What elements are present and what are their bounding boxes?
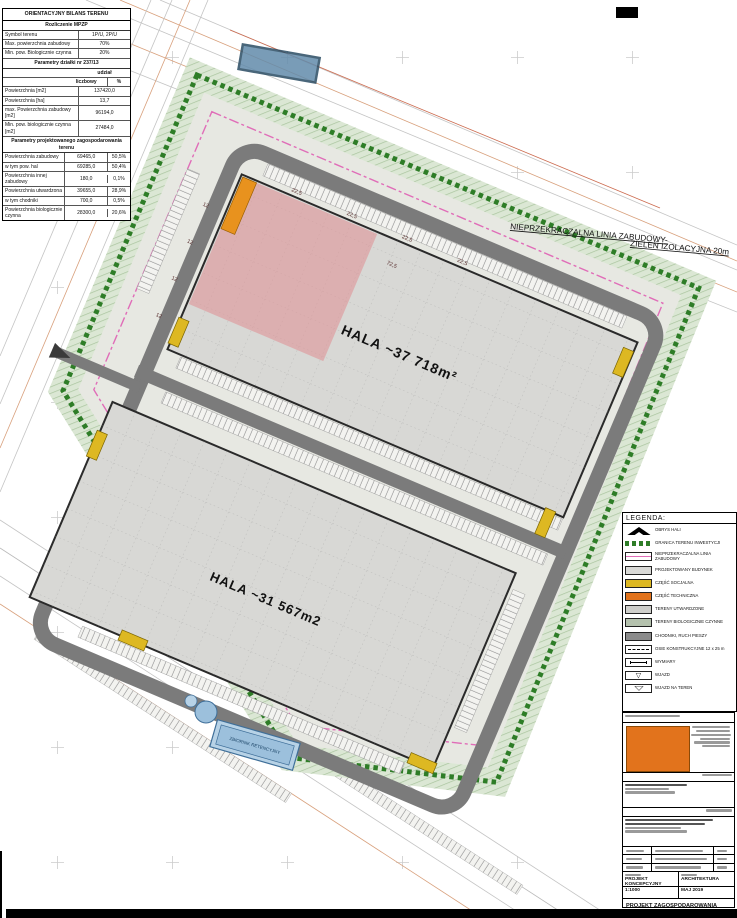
legend-title: LEGENDA: [623,513,736,524]
sidewalks-swatch [625,632,652,641]
sheet-left-edge [0,851,2,918]
company-info [691,725,732,749]
biologically-active-swatch [625,618,652,627]
legend-item: CHODNIKI, RUCH PIESZY [623,630,736,643]
legend-item: GRANICA TERENU INWESTYCJI [623,537,736,550]
titleblock-logo-row [623,723,734,773]
drawing-scale: 1:1000 [625,888,676,893]
building-limit-line-icon [625,552,652,561]
table-header-udzial: .udział [3,69,130,78]
table-row: Powierzchnia [m2] 137420,0 [3,87,130,96]
construction-axes-icon [625,645,652,654]
social-part-swatch [625,579,652,588]
legend-item: TERENY BIOLOGICZNIE CZYNNE [623,616,736,629]
investor-block [623,784,734,808]
dimensions-icon [625,658,652,667]
mpzp-section-header: Rozliczenie MPZP [3,21,130,31]
table-row: Powierzchnia innej zabudowy 180,0 0,1% [3,172,130,188]
table-row: w tym chodniki 700,0 0,5% [3,197,130,206]
drawing-date: MAJ 2019 [681,888,732,893]
entrance-icon [625,671,652,680]
table-row: Powierzchnia utwardzona 39655,0 28,9% [3,187,130,196]
land-balance-table: ORIENTACYJNY BILANS TERENU Rozliczenie M… [2,8,131,221]
personnel-row [623,864,734,872]
investment-block [623,819,734,847]
design-params-header: Parametry projektowanego zagospodarowani… [3,137,130,154]
legend-item: WJAZD [623,669,736,682]
legend-item: WJAZD NA TEREN [623,682,736,695]
sheet-bottom-bar [6,909,737,918]
site-plan-sheet: HALA ~37 718m² HALA ~31 567m2 22,5 2 [0,0,737,918]
site-entrance-icon [625,684,652,693]
company-logo [626,726,690,772]
table-row: Powierzchnia [ha] 13,7 [3,97,130,106]
top-right-marker [616,7,638,18]
scale-date-row: 1:1000 MAJ 2019 [623,887,734,899]
table-header-cols: . liczbowy % [3,78,130,87]
legend-item: NIEPRZEKRACZALNA LINIA ZABUDOWY [623,550,736,563]
legend-item: WYMIARY [623,656,736,669]
discipline: ARCHITEKTURA [681,877,732,882]
titleblock-strip [623,809,734,817]
hall-outline-icon [625,526,652,535]
investment-boundary-icon [625,541,652,546]
designed-building-swatch [625,566,652,575]
legend-item: PROJEKTOWANY BUDYNEK [623,564,736,577]
table-row: Symbol terenu 1P/U, 2P/U [3,31,130,40]
stage-discipline-row: PROJEKT KONCEPCYJNY ARCHITEKTURA [623,872,734,887]
plot-params-header: Parametry działki nr 237/13 [3,59,130,69]
project-stage: PROJEKT KONCEPCYJNY [625,877,676,887]
legend-item: CZĘŚĆ SOCJALNA [623,577,736,590]
paved-areas-swatch [625,605,652,614]
legend-item: TERENY UTWARDZONE [623,603,736,616]
titleblock-strip [623,715,734,723]
personnel-row [623,855,734,863]
legend-item: OSIE KONSTRUKCYJNE 12 x 25 m [623,643,736,656]
table-row: Max. powierzchnia zabudowy 70% [3,40,130,49]
table-row: Min. pow. biologicznie czynna [m2] 27484… [3,121,130,137]
legend: LEGENDA: OBRYS HALI GRANICA TERENU INWES… [622,512,737,712]
balance-title: ORIENTACYJNY BILANS TERENU [3,9,130,21]
legend-item: CZĘŚĆ TECHNICZNA [623,590,736,603]
table-row: Powierzchnia biologicznie czynna 28300,0… [3,206,130,221]
technical-part-swatch [625,592,652,601]
table-row: max. Powierzchnia zabudowy [m2] 96194,0 [3,106,130,122]
personnel-row [623,847,734,855]
table-row: Powierzchnia zabudowy 69465,0 50,5% [3,153,130,162]
title-block: PROJEKT KONCEPCYJNY ARCHITEKTURA 1:1000 … [622,712,735,908]
table-row: Min. pow. Biologicznie czynna 20% [3,49,130,58]
legend-item: OBRYS HALI [623,524,736,537]
table-row: w tym pow. hal 69285,0 50,4% [3,163,130,172]
titleblock-strip [623,774,734,782]
